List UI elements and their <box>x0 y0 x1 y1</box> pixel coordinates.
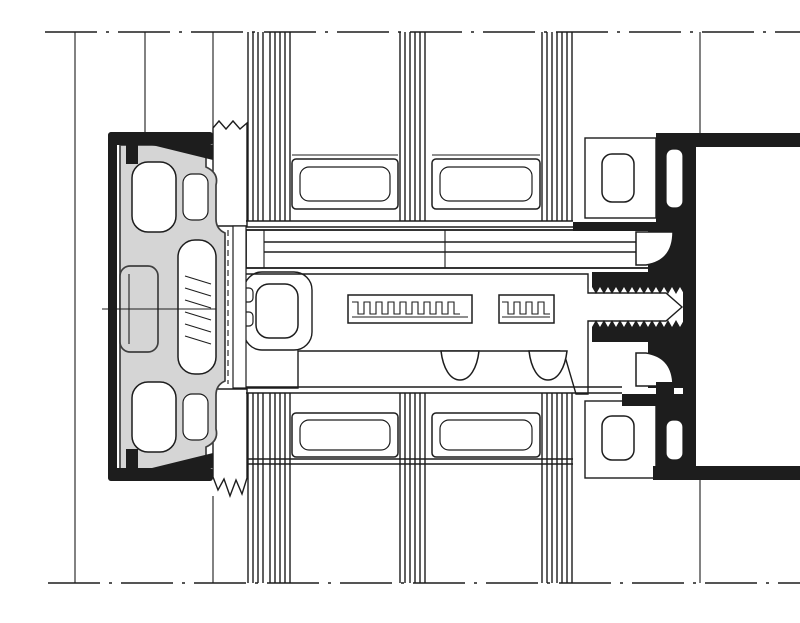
cap-chamber-4 <box>183 394 208 440</box>
screw-channel-1 <box>348 295 472 323</box>
mullion-flange-bottom <box>653 466 800 480</box>
mullion-leg-slot-top <box>666 149 683 208</box>
cover-cap-tab-bottom <box>126 449 138 468</box>
lower-spacer-2 <box>432 413 540 457</box>
mullion-leg-slot-bottom <box>666 420 683 460</box>
cap-chamber-3 <box>132 382 176 452</box>
plate-leg <box>233 226 246 388</box>
cap-chamber-1 <box>132 162 176 232</box>
fixing-screw-channels <box>348 295 554 323</box>
cover-cap-tab-top <box>126 145 138 164</box>
cover-cap-shell-bottom <box>108 468 213 481</box>
mullion-seat-top <box>573 222 696 231</box>
interior-gasket-top-chamber <box>602 154 634 202</box>
cover-cap-shell-left <box>108 132 117 481</box>
upper-pane-inner <box>542 32 572 221</box>
interior-gasket-bottom-chamber <box>602 416 634 460</box>
upper-spacer-1 <box>292 155 398 209</box>
facade-section-drawing <box>40 16 800 607</box>
cap-chamber-2 <box>183 174 208 220</box>
cap-chamber-center <box>178 240 216 374</box>
lower-pane-inner <box>542 393 572 583</box>
upper-spacer-2 <box>432 155 540 209</box>
mullion-web <box>683 133 696 480</box>
mullion-step-bottom <box>656 382 674 396</box>
gasket-ring-core <box>256 284 298 338</box>
cover-cap-shell-top <box>108 132 213 145</box>
facade-section-svg <box>40 16 800 607</box>
lower-spacer-1 <box>292 413 398 457</box>
